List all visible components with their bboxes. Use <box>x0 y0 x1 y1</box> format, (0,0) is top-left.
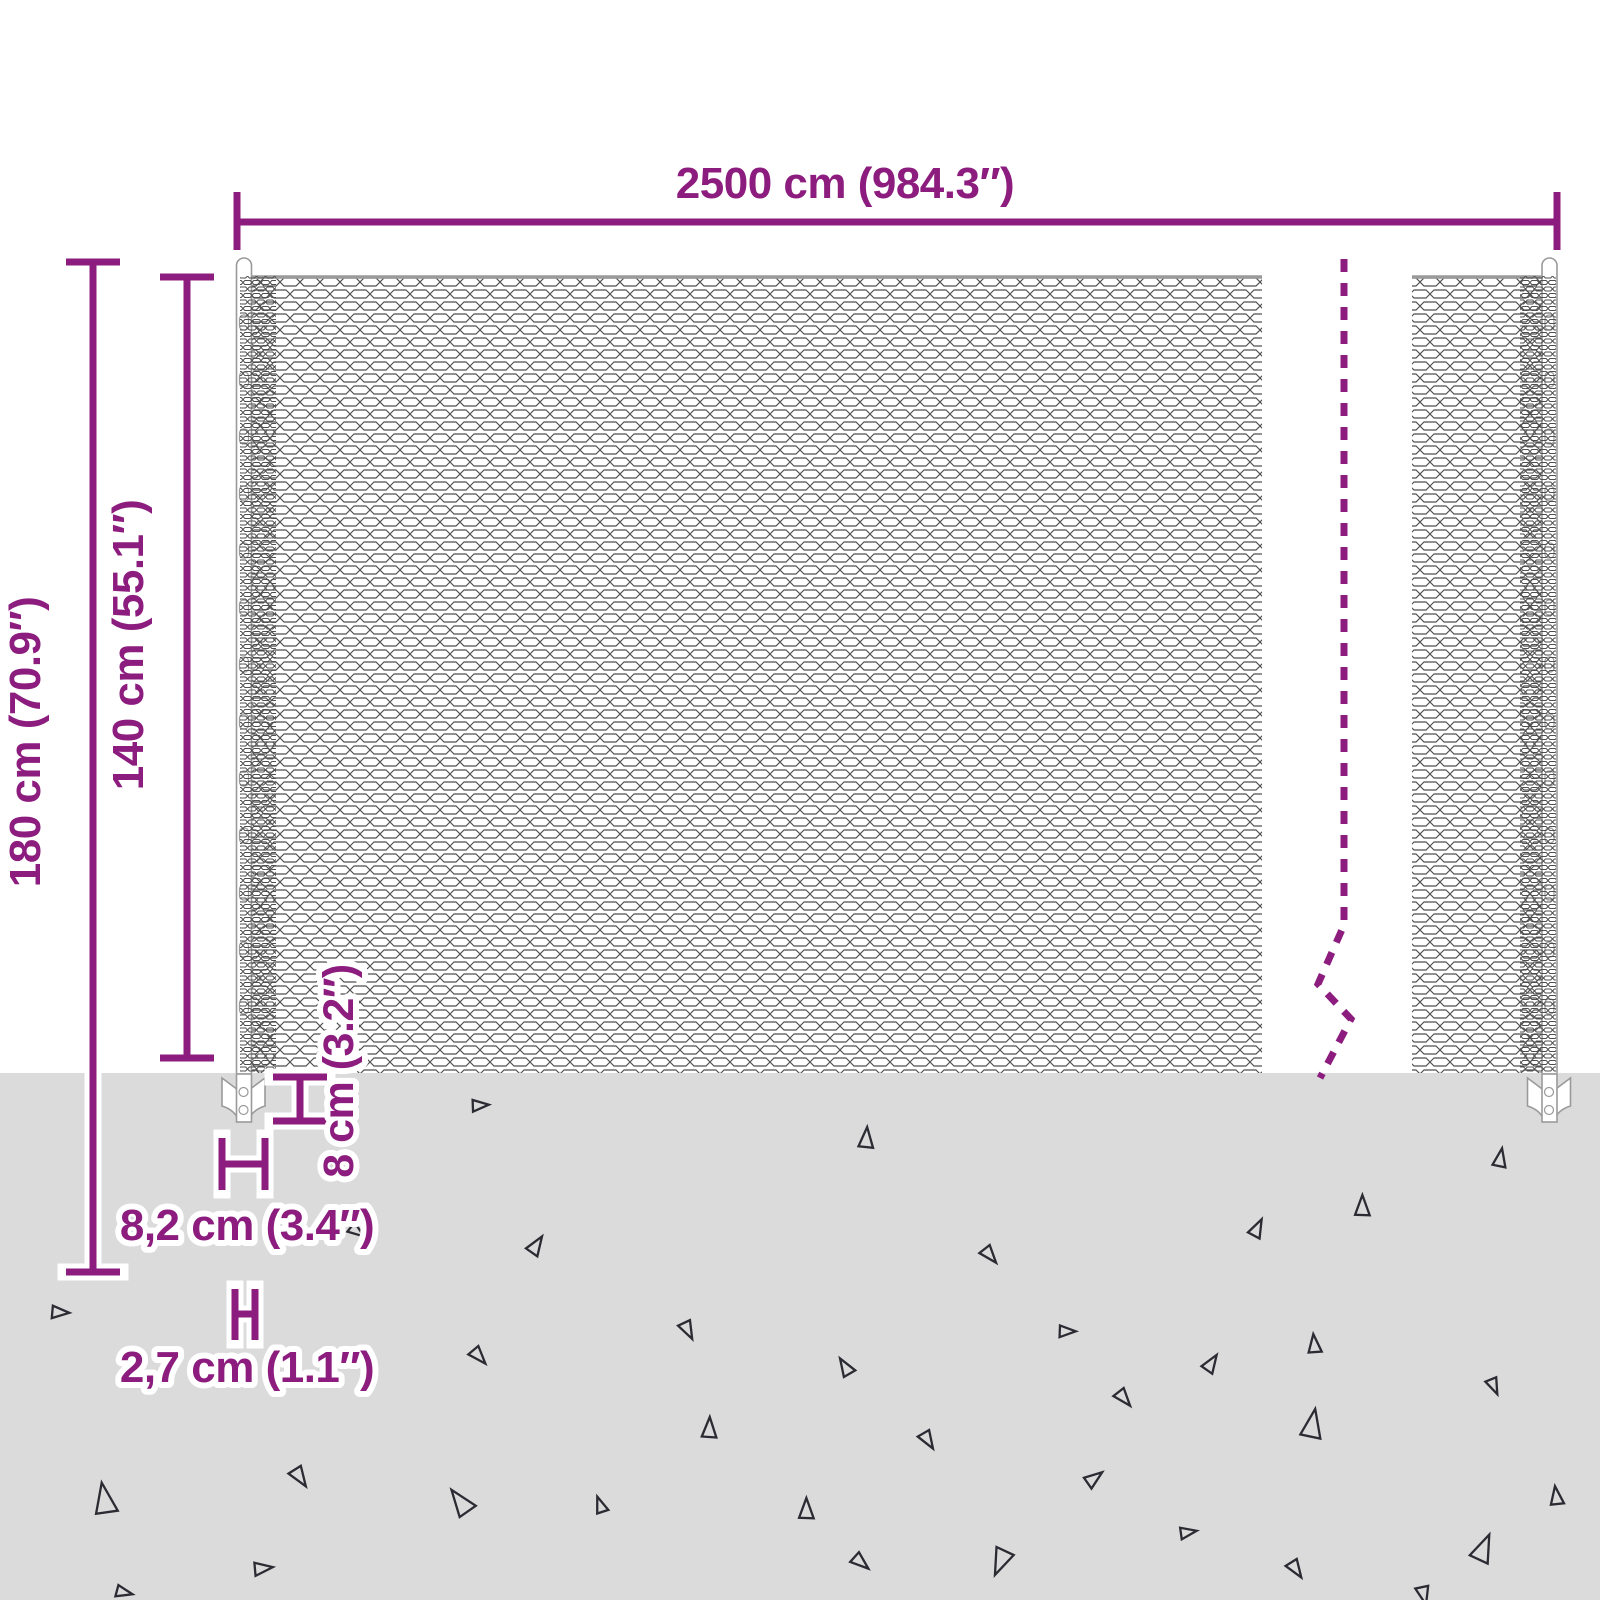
label-total-width: 2500 cm (984.3″) <box>676 159 1014 208</box>
label-plate-height: 8 cm (3.2″) <box>315 964 363 1177</box>
plate-hole <box>239 1088 248 1097</box>
fence-dimension-diagram: 2500 cm (984.3″) 180 cm (70.9″) 140 cm (… <box>0 0 1600 1600</box>
label-plate-width: 8,2 cm (3.4″) <box>120 1201 374 1250</box>
dim-line-mesh-height <box>160 277 214 1058</box>
plate-hole <box>239 1106 248 1115</box>
mesh-panel-main <box>251 276 1262 1073</box>
label-post-width: 2,7 cm (1.1″) <box>120 1343 374 1392</box>
label-total-height: 180 cm (70.9″) <box>1 597 50 887</box>
mesh-edge-weave-right <box>1520 276 1556 1073</box>
mesh-edge-weave-left <box>240 276 276 1073</box>
diagram-canvas: 2500 cm (984.3″) 180 cm (70.9″) 140 cm (… <box>0 0 1600 1600</box>
plate-hole <box>1545 1088 1554 1097</box>
length-break-dashed-line <box>1318 259 1351 1078</box>
label-mesh-height: 140 cm (55.1″) <box>104 500 153 790</box>
plate-hole <box>1545 1106 1554 1115</box>
